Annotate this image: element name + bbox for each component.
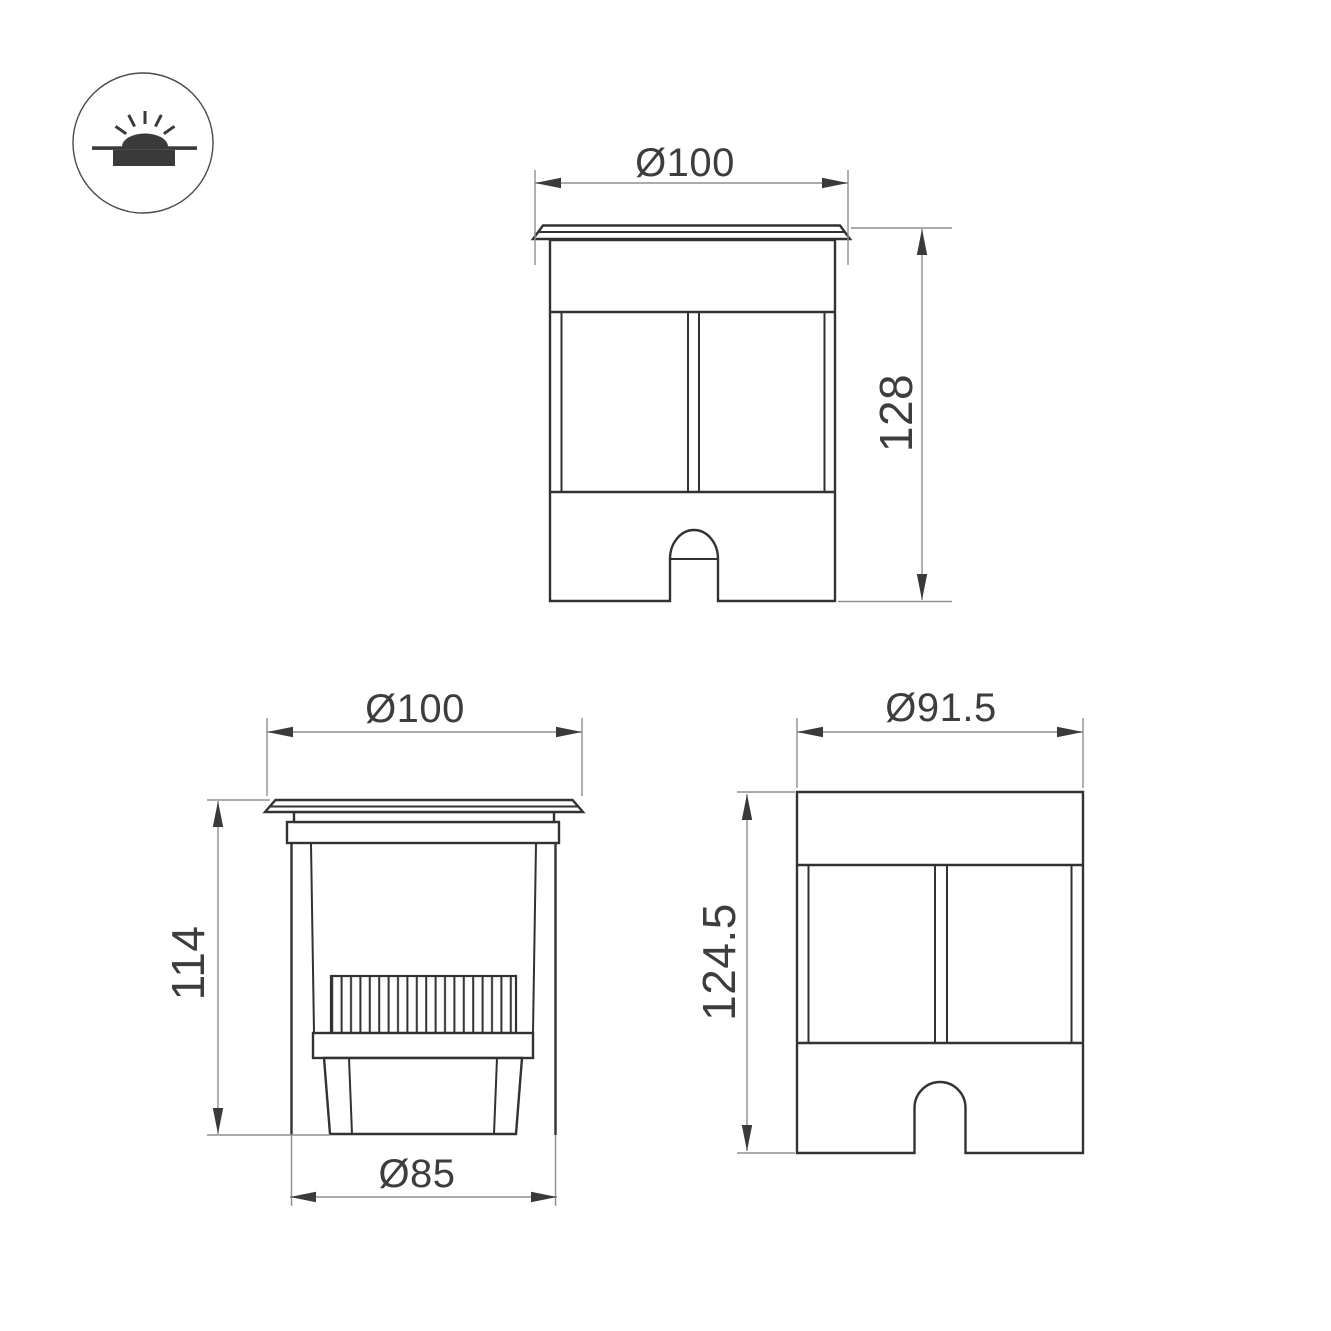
- section-bottom-diameter-label: Ø85: [378, 1152, 455, 1196]
- side-view: Ø91.5 124.5: [693, 686, 1083, 1153]
- front-diameter-label: Ø100: [635, 141, 735, 185]
- section-inner-wall-left: [311, 844, 314, 1032]
- technical-drawing-canvas: Ø100 128: [0, 0, 1331, 1331]
- section-view: Ø100 114 Ø85: [162, 687, 583, 1206]
- section-inner-wall-right: [533, 844, 536, 1032]
- section-mounting-ring: [287, 822, 559, 843]
- recessed-housing-icon: [113, 150, 175, 166]
- front-height-label: 128: [870, 374, 922, 452]
- side-height-dimension: 124.5: [693, 792, 795, 1153]
- front-body-outline: [550, 240, 835, 601]
- side-body-outline: [797, 792, 1083, 1153]
- heatsink-plate: [313, 1033, 533, 1058]
- ground-line-icon: [92, 146, 197, 150]
- section-collar: [294, 812, 554, 822]
- section-lower-housing: [324, 1058, 522, 1134]
- heatsink-fins: [331, 976, 516, 1033]
- side-diameter-label: Ø91.5: [885, 686, 996, 730]
- section-top-diameter-dimension: Ø100: [267, 687, 582, 796]
- section-height-dimension: 114: [162, 800, 330, 1135]
- side-height-label: 124.5: [693, 903, 745, 1021]
- side-diameter-dimension: Ø91.5: [797, 686, 1083, 788]
- section-top-diameter-label: Ø100: [365, 687, 465, 731]
- recessed-light-icon: [73, 73, 213, 213]
- front-height-dimension: 128: [838, 228, 952, 602]
- front-view: Ø100 128: [533, 141, 952, 602]
- section-bottom-diameter-dimension: Ø85: [290, 1135, 557, 1206]
- section-height-label: 114: [162, 926, 214, 1001]
